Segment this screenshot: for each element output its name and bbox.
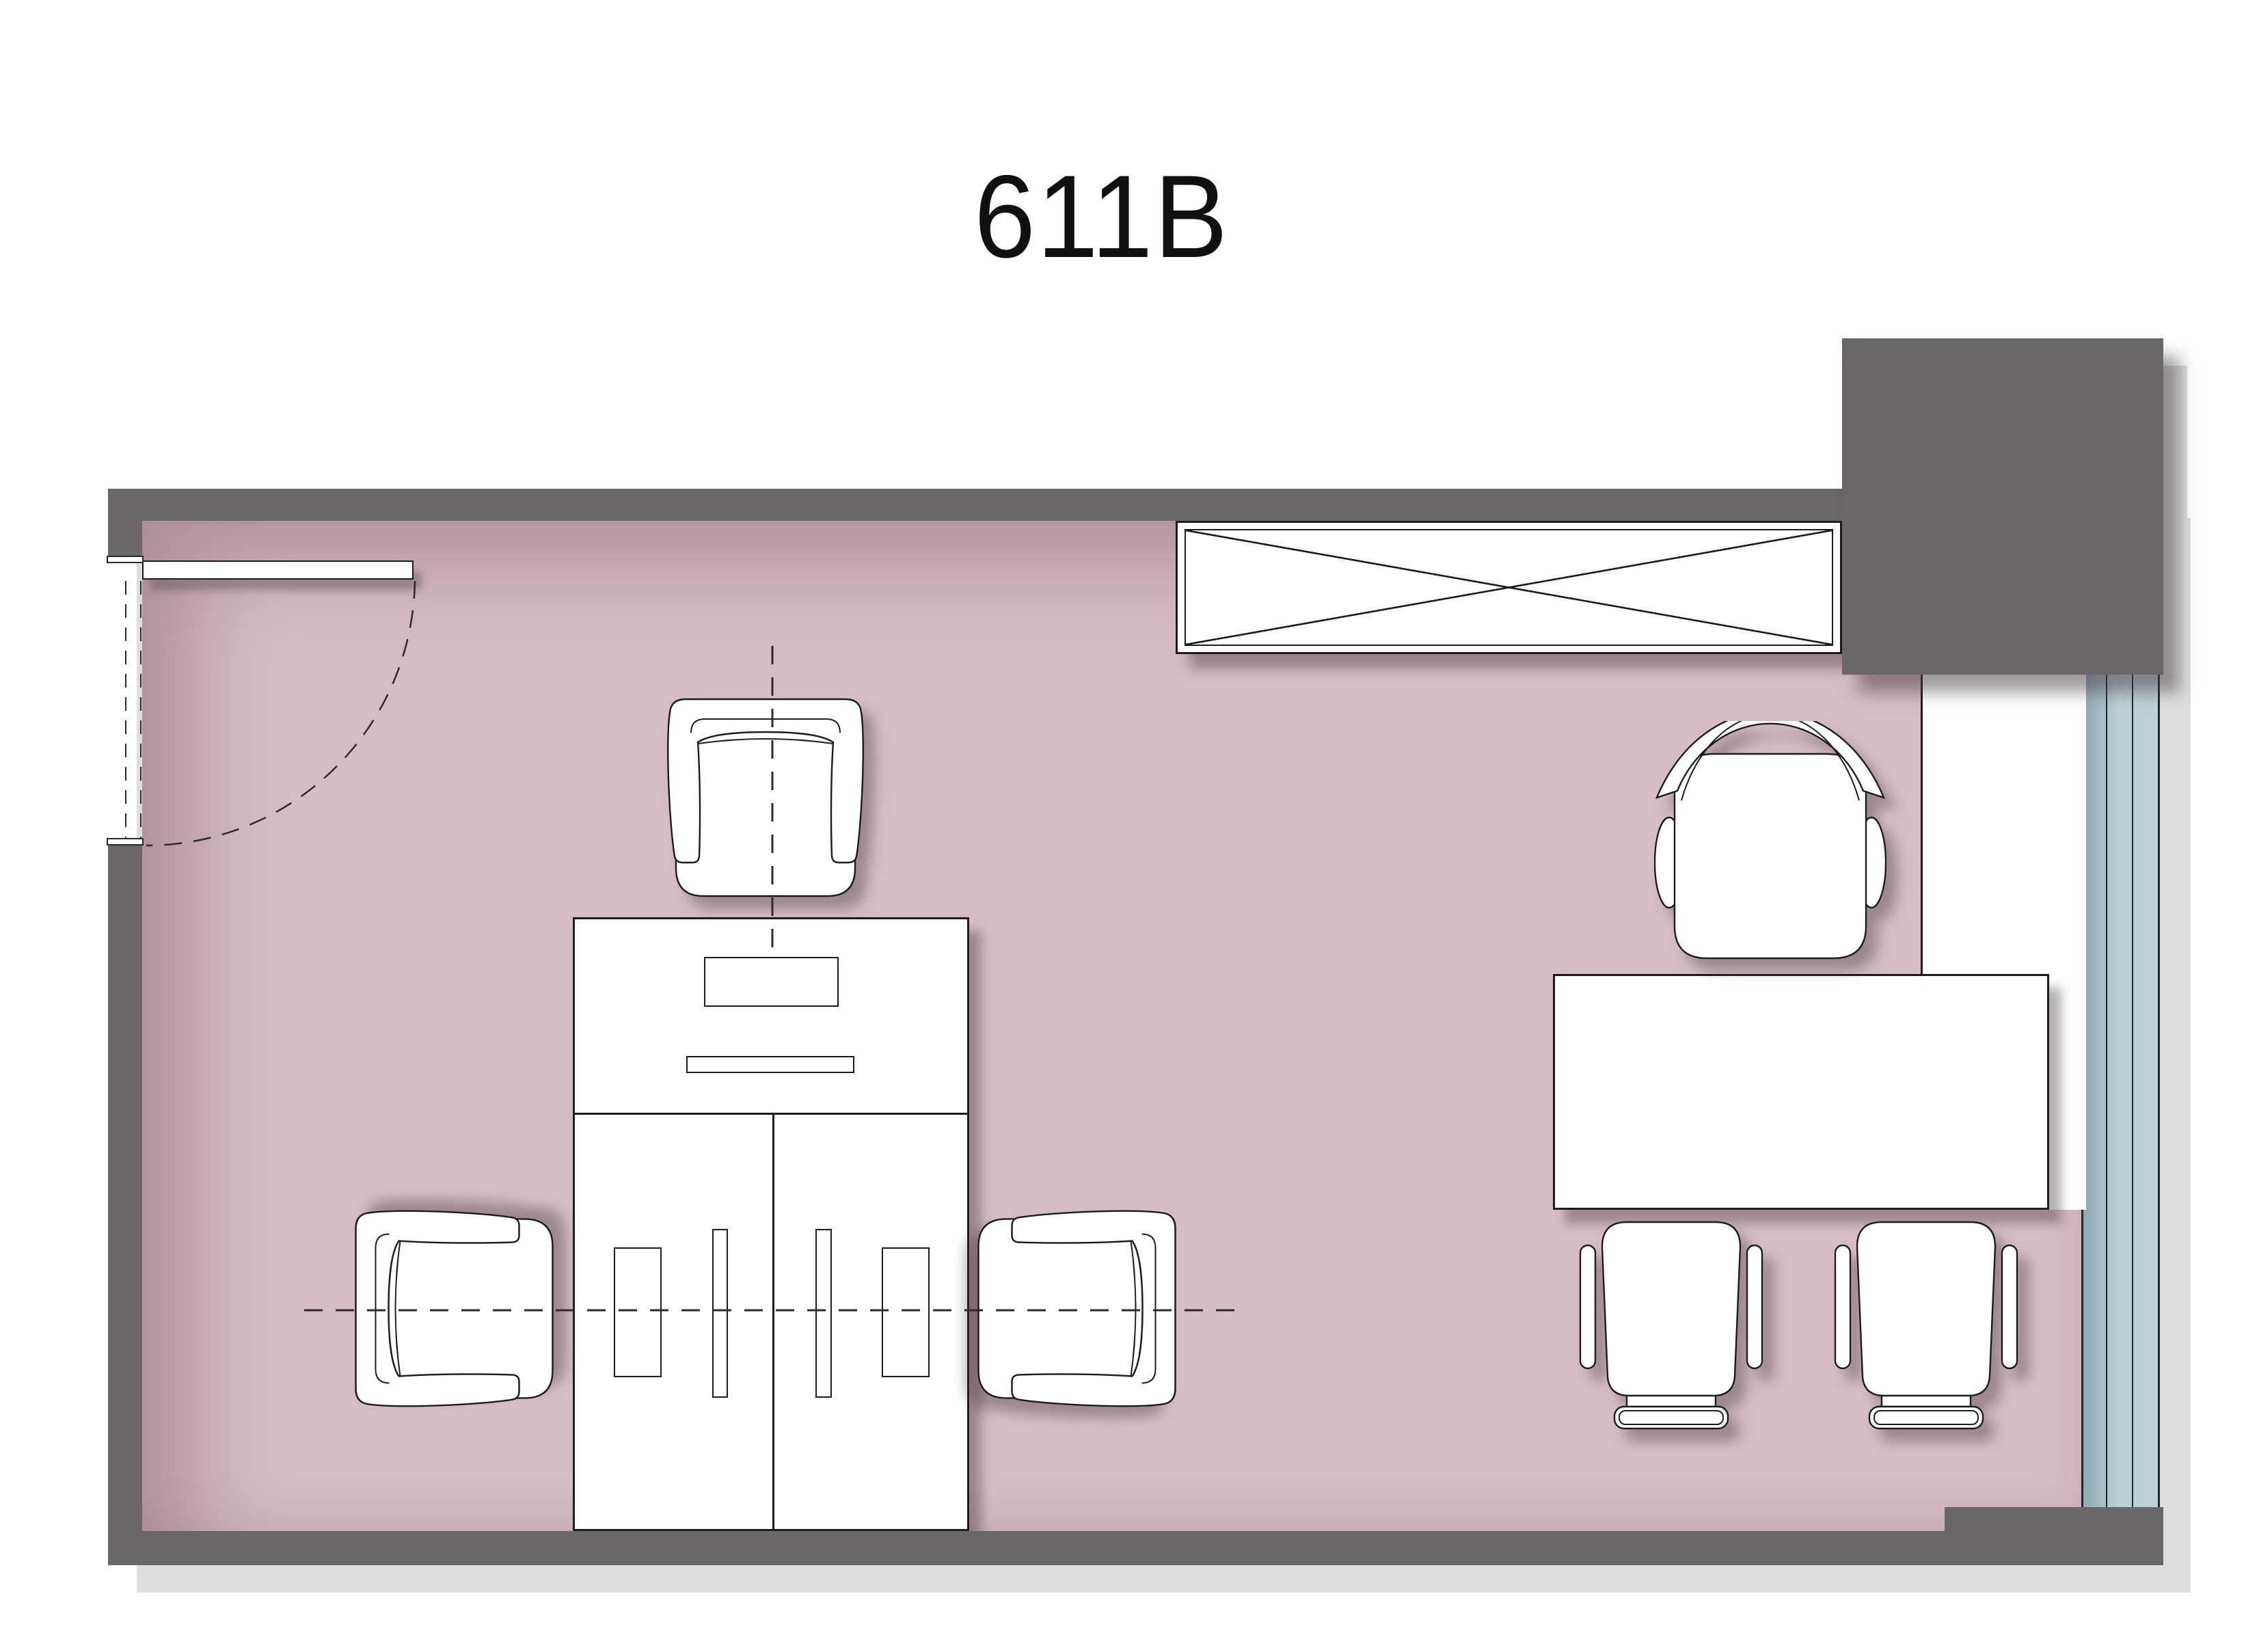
- room-number-label: 611B: [974, 149, 1229, 284]
- pedestal-handle-left: [712, 1229, 728, 1398]
- chair-armrest-icon: [1835, 1245, 1850, 1368]
- door-jamb-bottom: [107, 838, 144, 845]
- chair-base-bar: [1614, 1407, 1728, 1428]
- task-chair-top: [660, 690, 871, 899]
- chair-seat: [388, 1219, 553, 1398]
- window-mullion-icon: [2132, 675, 2133, 1507]
- manager-desk: [1553, 974, 2049, 1210]
- window-glazing: [2081, 675, 2160, 1507]
- pedestal-panel-right: [882, 1247, 930, 1377]
- wall-bottom: [108, 1531, 2163, 1565]
- visitor-chair-right: [976, 1203, 1185, 1415]
- double-workstation-desk: [573, 917, 969, 1531]
- wall-top: [108, 489, 1842, 521]
- chair-seat: [676, 731, 855, 896]
- chair-base-neck: [1627, 1396, 1716, 1407]
- wall-left-lower: [108, 845, 142, 1565]
- monitor-icon: [704, 957, 839, 1007]
- guest-chair-left: [1579, 1218, 1763, 1430]
- chair-base-neck: [1882, 1396, 1971, 1407]
- door-leaf: [142, 560, 414, 580]
- chair-armrest-icon: [1580, 1245, 1595, 1368]
- guest-chair-right: [1834, 1218, 2018, 1430]
- tall-side-cabinet: [1921, 675, 2086, 974]
- chair-armrest-icon: [2002, 1245, 2017, 1368]
- chair-armrest-icon: [1747, 1245, 1762, 1368]
- pedestal-panel-left: [614, 1247, 662, 1377]
- structural-column: [1842, 338, 2163, 675]
- window-mullion-icon: [2106, 675, 2107, 1507]
- door-jamb-top: [107, 556, 144, 563]
- wall-left-upper: [108, 489, 142, 557]
- desk-edge-line: [573, 1113, 969, 1115]
- chair-seat: [1857, 1222, 1995, 1396]
- chair-base-bar: [1869, 1407, 1983, 1428]
- wall-cabinet-crossed: [1176, 521, 1842, 654]
- chair-seat: [979, 1219, 1144, 1398]
- floor-plan-page: 611B: [0, 0, 2259, 1652]
- visitor-chair-left: [347, 1203, 556, 1415]
- desk-center-split-line: [772, 1115, 774, 1531]
- pedestal-handle-right: [815, 1229, 832, 1398]
- chair-body: [1675, 754, 1866, 958]
- wall-bottom-step: [1945, 1507, 2163, 1531]
- executive-chair: [1654, 721, 1886, 967]
- cabinet-x-icon: [1185, 529, 1833, 646]
- keyboard-tray-icon: [686, 1056, 854, 1073]
- side-cabinet-return: [2049, 974, 2086, 1210]
- chair-seat: [1602, 1222, 1740, 1396]
